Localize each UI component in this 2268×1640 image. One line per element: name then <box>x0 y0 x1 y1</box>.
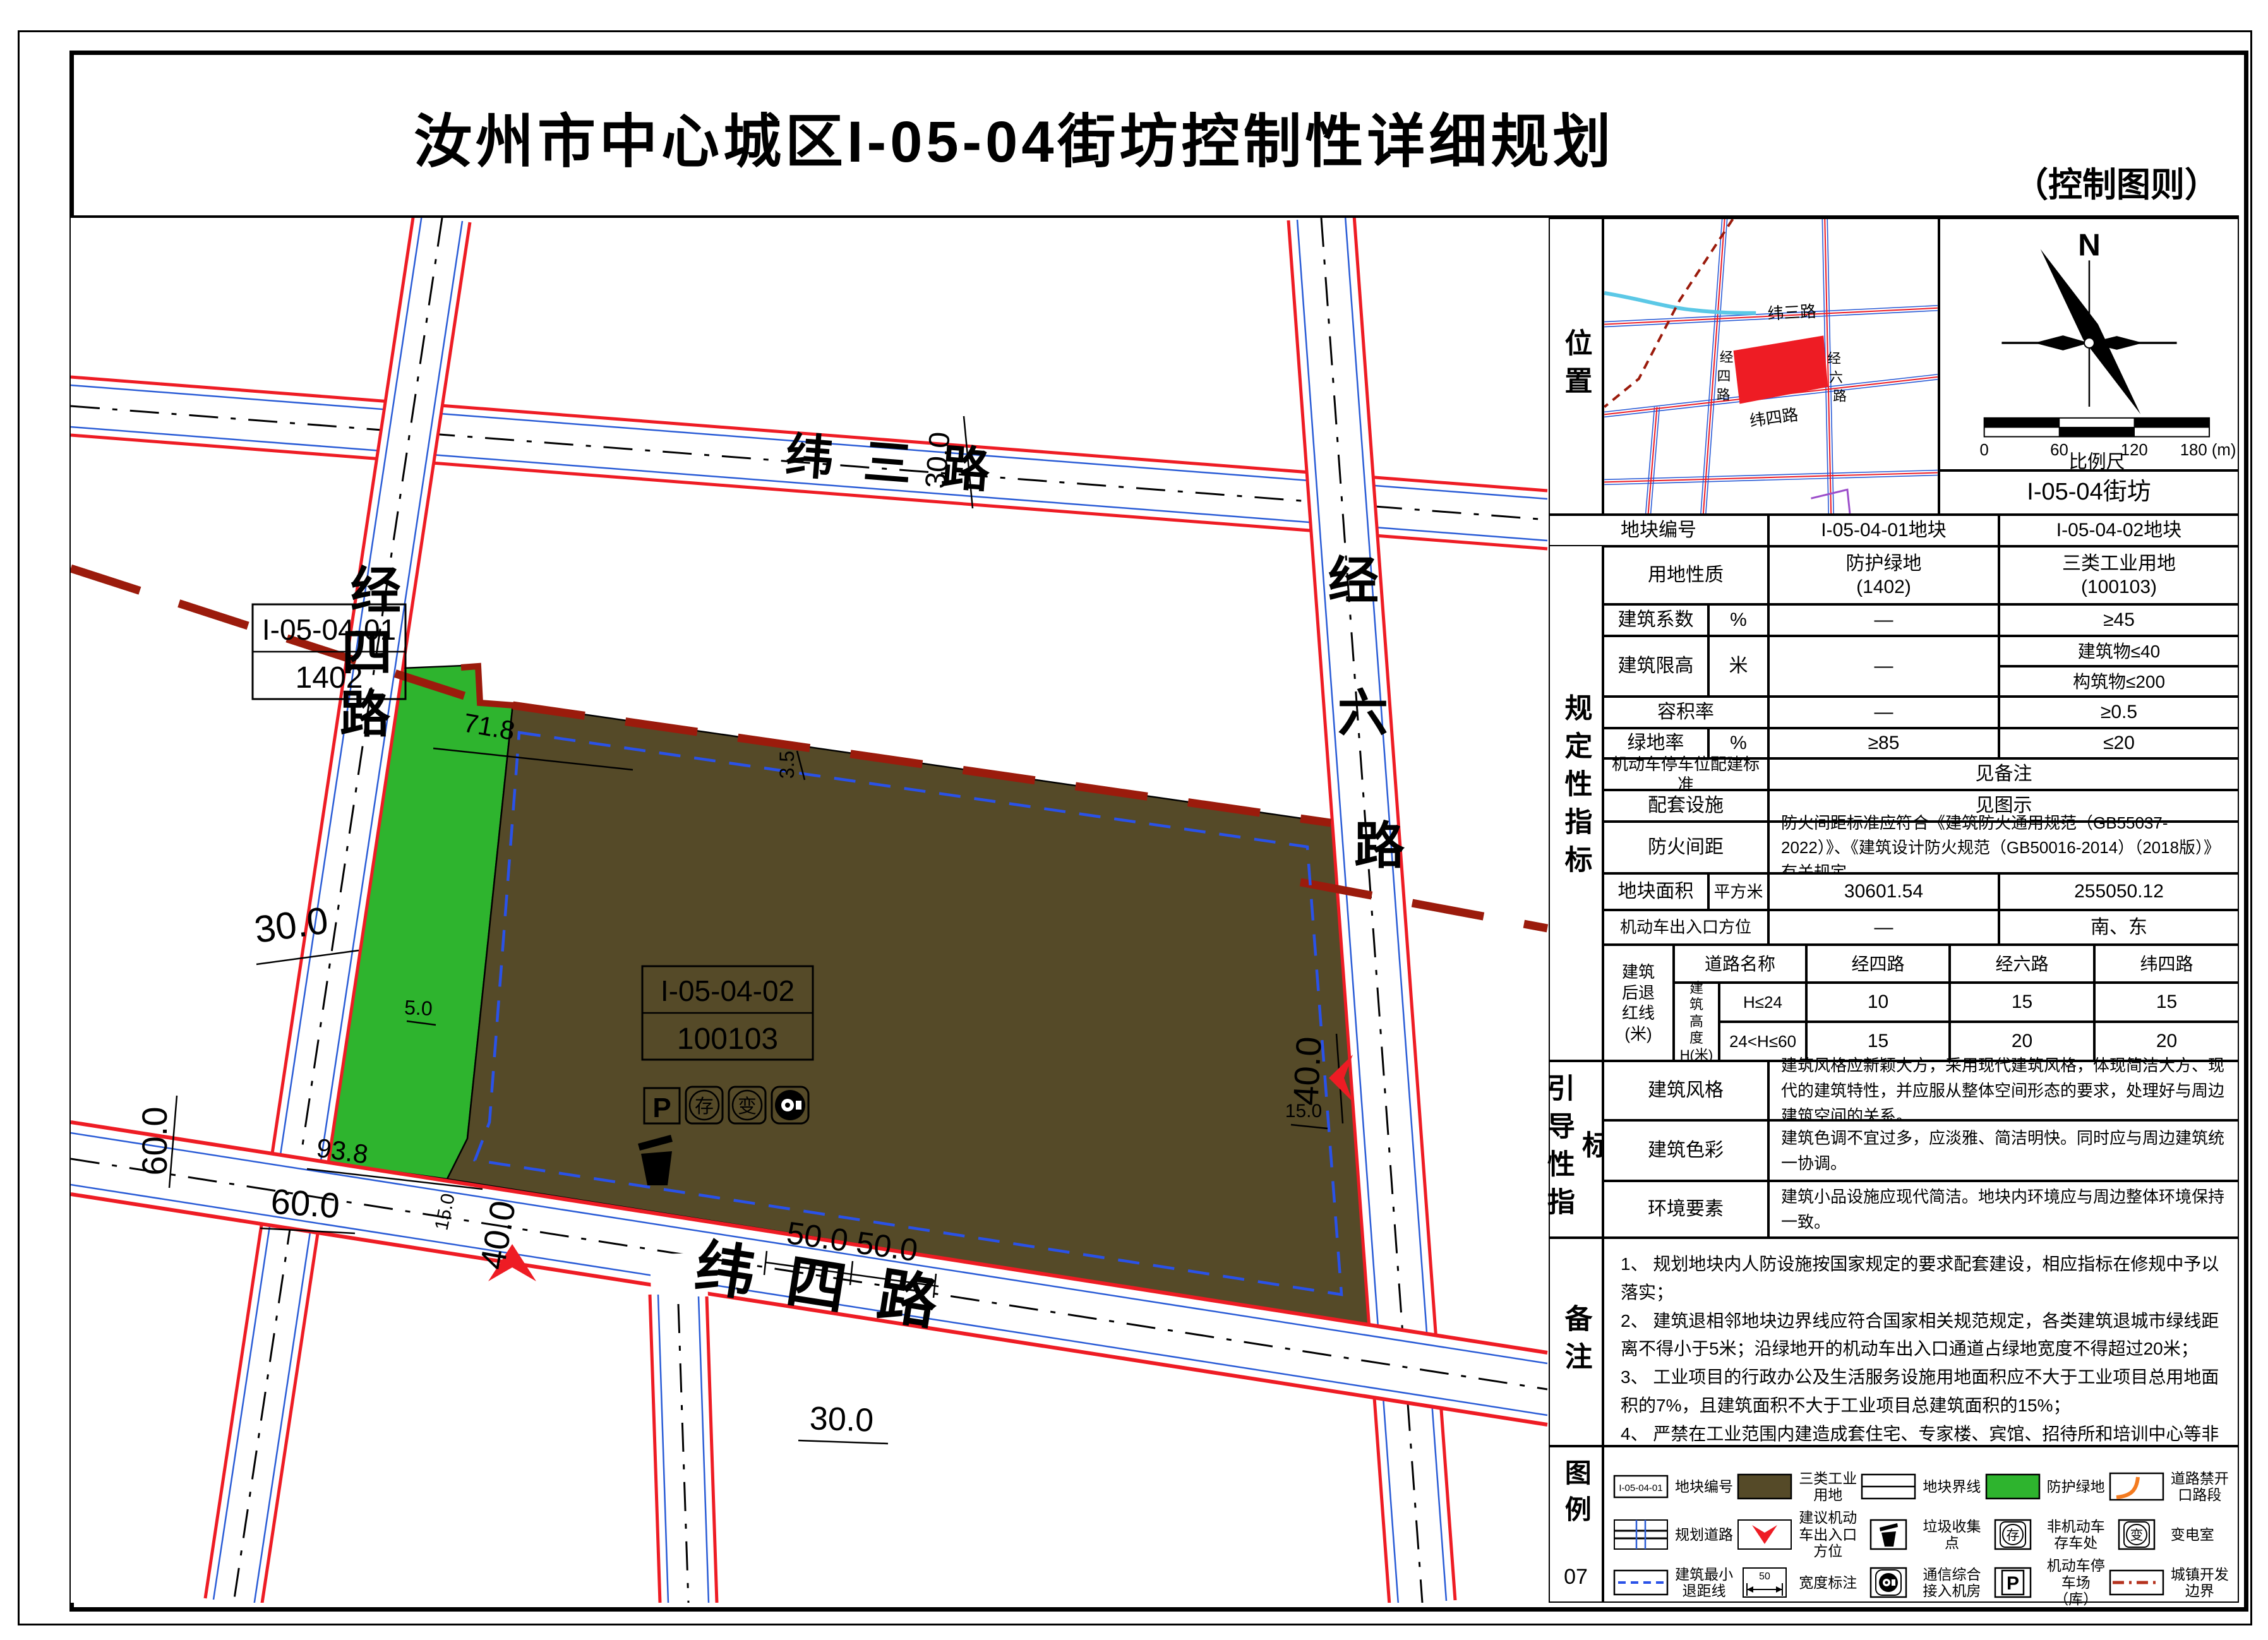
legend-item-no-opening: 道路禁开口路段 <box>2109 1464 2229 1509</box>
row-parcelno-label: 地块编号 <box>1549 515 1768 546</box>
row-landuse-label: 用地性质 <box>1603 546 1768 604</box>
width-note-icon: 50 <box>1737 1567 1792 1598</box>
parcel-code-label: I-05-04-02 <box>661 974 795 1007</box>
legend-item-industrial: 三类工业用地 <box>1737 1464 1857 1509</box>
row-area-c1: 30601.54 <box>1768 873 1999 910</box>
minimap-river <box>1604 293 1756 313</box>
legend-item-entry-arrow: 建议机动车出入口方位 <box>1737 1512 1857 1557</box>
min-setback-icon <box>1613 1567 1669 1598</box>
svg-text:存: 存 <box>695 1096 714 1117</box>
setback-r1-v1: 15 <box>1950 983 2094 1022</box>
row-height-c2b: 构筑物≤200 <box>1999 666 2239 697</box>
plan-sheet: 汝州市中心城区I-05-04街坊控制性详细规划 （控制图则） <box>0 0 2268 1640</box>
setback-road-2: 纬四路 <box>2094 945 2239 983</box>
row-coeff-c1: — <box>1768 604 1999 636</box>
green-swatch-icon <box>1985 1471 2041 1502</box>
page-title: 汝州市中心城区I-05-04街坊控制性详细规划 <box>414 95 1615 179</box>
legend-item-dev-boundary: 城镇开发边界 <box>2109 1560 2229 1605</box>
row-entry-label: 机动车出入口方位 <box>1603 910 1768 945</box>
row-coeff-c2: ≥45 <box>1999 604 2239 636</box>
compass-rose <box>2001 249 2176 414</box>
minimap-label-jingsi: 经 四 路 <box>1717 349 1737 402</box>
scale-label: 比例尺 <box>2068 452 2125 469</box>
legend-item-trash: 垃圾收集点 <box>1861 1512 1981 1557</box>
page-number: 07 <box>1564 1564 1588 1591</box>
row-green-c2: ≤20 <box>1999 728 2239 758</box>
svg-text:180 (m): 180 (m) <box>2180 441 2236 459</box>
minimap-label-weisi: 纬四路 <box>1748 405 1799 431</box>
note-item: 1、 规划地块内人防设施按国家规定的要求配套建设，相应指标在修规中予以落实； <box>1621 1250 2221 1307</box>
scale-bar <box>1984 418 2209 437</box>
guide-row0-label: 建筑风格 <box>1603 1061 1768 1120</box>
svg-text:60.0: 60.0 <box>135 1107 174 1176</box>
svg-text:P: P <box>652 1092 671 1123</box>
row-entry-c2: 南、东 <box>1999 910 2239 945</box>
svg-text:15.0: 15.0 <box>1285 1101 1322 1122</box>
legend-item-width-note: 50 宽度标注 <box>1737 1560 1857 1605</box>
substation-icon: 变 <box>2109 1519 2164 1550</box>
row-area-c2: 255050.12 <box>1999 873 2239 910</box>
notes-side-label: 备注 <box>1549 1238 1603 1446</box>
north-scale-cell: N 0 60 120 180 ( <box>1939 218 2239 470</box>
legend-item-parking: P 机动车停车场（库） <box>1985 1560 2105 1605</box>
legend-item-bike-storage: 存 非机动车存车处 <box>1985 1512 2105 1557</box>
legend-item-telecom: 通信综合接入机房 <box>1861 1560 1981 1605</box>
bike-storage-icon: 存 <box>1985 1519 2041 1550</box>
legend-item-green: 防护绿地 <box>1985 1464 2105 1509</box>
parking-icon: P <box>1985 1567 2041 1598</box>
legend-side-label: 图例 <box>1559 1459 1593 1532</box>
parcel-code-icon: I-05-04-01 <box>1613 1471 1669 1502</box>
page-subtitle: （控制图则） <box>2014 157 2219 206</box>
legend-side-cell: 图例 07 <box>1549 1446 1603 1603</box>
svg-text:I-05-04-01: I-05-04-01 <box>1619 1483 1662 1493</box>
setback-height-label: 建 筑 高 度 H(米) <box>1674 983 1719 1061</box>
svg-text:60.0: 60.0 <box>270 1181 341 1225</box>
setback-road-header: 道路名称 <box>1674 945 1806 983</box>
legend-grid: I-05-04-01 地块编号 三类工业用地 地块界线 防护绿地 <box>1603 1446 2239 1603</box>
planned-road-icon <box>1613 1519 1669 1550</box>
row-parking-label: 机动车停车位配建标准 <box>1603 758 1768 790</box>
guide-row1-text: 建筑色调不宜过多，应淡雅、简洁明快。同时应与周边建筑统一协调。 <box>1768 1120 2239 1181</box>
minimap-label-weisan: 纬三路 <box>1767 302 1817 323</box>
row-far-c1: — <box>1768 697 1999 728</box>
svg-text:P: P <box>2007 1573 2019 1594</box>
note-item: 3、 工业项目的行政办公及生活服务设施用地面积应不大于工业项目总用地面积的7%，… <box>1621 1363 2221 1420</box>
entry-arrow-icon <box>1737 1519 1792 1550</box>
row-entry-c1: — <box>1768 910 1999 945</box>
minimap-label-jingliu: 经 六 路 <box>1827 350 1847 404</box>
legend-item-planned-road: 规划道路 <box>1613 1512 1733 1557</box>
row-parcelno-c2: I-05-04-02地块 <box>1999 515 2239 546</box>
road-south-branch <box>650 1254 717 1603</box>
regulatory-side-label: 规定性指标 <box>1549 515 1603 1061</box>
svg-text:30.0: 30.0 <box>918 431 956 490</box>
row-coeff-label: 建筑系数 <box>1603 604 1708 636</box>
trash-icon <box>1861 1519 1916 1550</box>
row-facility-label: 配套设施 <box>1603 790 1768 822</box>
setback-road-0: 经四路 <box>1806 945 1950 983</box>
row-parking-value: 见备注 <box>1768 758 2239 790</box>
svg-text:5.0: 5.0 <box>404 996 433 1020</box>
legend-item-parcel-code: I-05-04-01 地块编号 <box>1613 1464 1733 1509</box>
row-landuse-c1: 防护绿地 (1402) <box>1768 546 1999 604</box>
industrial-swatch-icon <box>1737 1471 1792 1502</box>
row-height-c2a: 建筑物≤40 <box>1999 636 2239 666</box>
legend-item-min-setback: 建筑最小退距线 <box>1613 1560 1733 1605</box>
location-side-label: 位置 <box>1549 218 1603 515</box>
guide-row2-label: 环境要素 <box>1603 1181 1768 1238</box>
north-label: N <box>2078 227 2101 262</box>
row-area-label: 地块面积 <box>1603 873 1708 910</box>
setback-r1-v2: 15 <box>2094 983 2239 1022</box>
svg-text:存: 存 <box>2006 1528 2019 1543</box>
legend-item-parcel-boundary: 地块界线 <box>1861 1464 1981 1509</box>
svg-text:60: 60 <box>2050 441 2068 459</box>
row-far-label: 容积率 <box>1603 697 1768 728</box>
dev-boundary-icon <box>2109 1567 2164 1598</box>
guide-side-label: 引导性指标 <box>1549 1061 1603 1238</box>
telecom-icon <box>1861 1567 1916 1598</box>
notes-body: 1、 规划地块内人防设施按国家规定的要求配套建设，相应指标在修规中予以落实； 2… <box>1603 1238 2239 1446</box>
row-area-unit: 平方米 <box>1708 873 1768 910</box>
parcel-usecode-label: 100103 <box>677 1022 778 1056</box>
svg-text:30.0: 30.0 <box>809 1400 874 1439</box>
guide-row0-text: 建筑风格应新颖大方，采用现代建筑风格，体现简洁大方、现代的建筑特性，并应服从整体… <box>1768 1061 2239 1120</box>
setback-road-1: 经六路 <box>1950 945 2094 983</box>
row-parcelno-c1: I-05-04-01地块 <box>1768 515 1999 546</box>
setback-r1-v0: 10 <box>1806 983 1950 1022</box>
setback-label: 建筑 后退 红线 (米) <box>1603 945 1674 1061</box>
row-height-unit: 米 <box>1708 636 1768 697</box>
row-fire-value: 防火间距标准应符合《建筑防火通用规范（GB55037-2022）》、《建筑设计防… <box>1768 822 2239 873</box>
row-green-c1: ≥85 <box>1768 728 1999 758</box>
row-height-c1: — <box>1768 636 1999 697</box>
svg-text:0: 0 <box>1980 441 1989 459</box>
location-minimap: 纬三路 纬四路 经 四 路 经 六 路 <box>1603 218 1939 515</box>
no-opening-icon <box>2109 1471 2164 1502</box>
plan-map: I-05-04-01 1402 I-05-04-02 100103 P 存 变 <box>71 218 1549 1603</box>
svg-text:变: 变 <box>738 1096 757 1117</box>
row-coeff-unit: % <box>1708 604 1768 636</box>
row-far-c2: ≥0.5 <box>1999 697 2239 728</box>
guide-row2-text: 建筑小品设施应现代简洁。地块内环境应与周边整体环境保持一致。 <box>1768 1181 2239 1238</box>
svg-text:变: 变 <box>2130 1528 2143 1543</box>
svg-text:3.5: 3.5 <box>776 751 798 779</box>
svg-text:50: 50 <box>1759 1571 1770 1582</box>
row-landuse-c2: 三类工业用地 (100103) <box>1999 546 2239 604</box>
row-fire-label: 防火间距 <box>1603 822 1768 873</box>
guide-row1-label: 建筑色彩 <box>1603 1120 1768 1181</box>
legend-item-substation: 变 变电室 <box>2109 1512 2229 1557</box>
setback-r1-label: H≤24 <box>1719 983 1806 1022</box>
parcel-boundary-icon <box>1861 1471 1916 1502</box>
row-height-label: 建筑限高 <box>1603 636 1708 697</box>
svg-text:40.0: 40.0 <box>1285 1036 1329 1106</box>
block-name-cell: I-05-04街坊 <box>1939 470 2239 515</box>
note-item: 2、 建筑退相邻地块边界线应符合国家相关规范规定，各类建筑退城市绿线距离不得小于… <box>1621 1307 2221 1364</box>
